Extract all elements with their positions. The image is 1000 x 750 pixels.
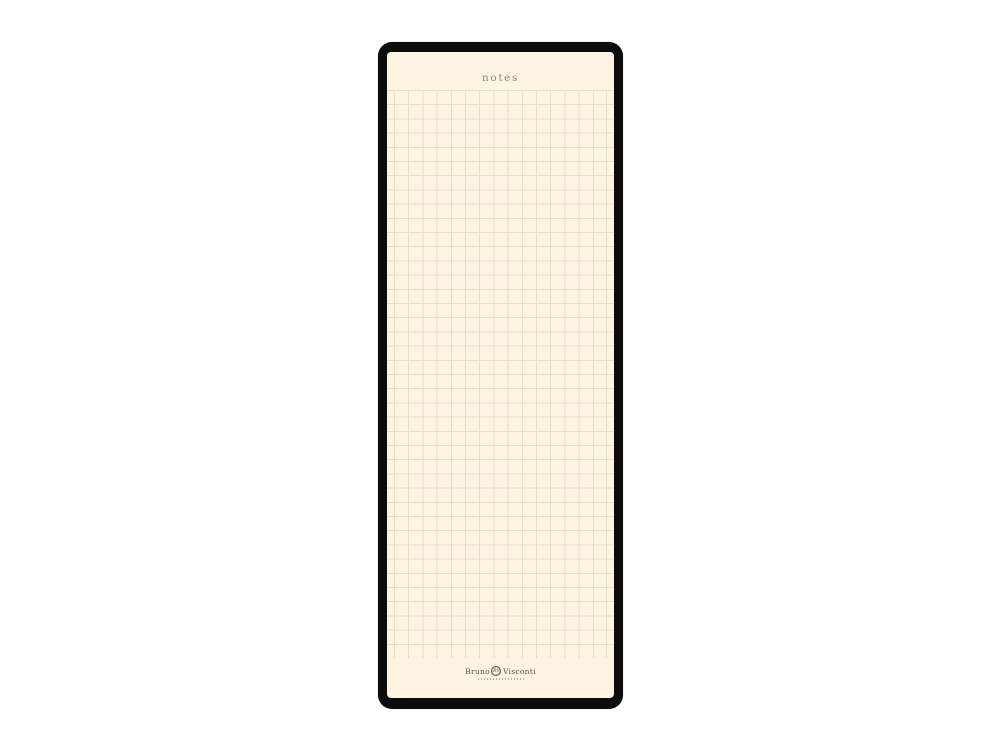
notepad-page: notes Bruno BV Visconti	[387, 52, 614, 698]
notepad-frame: notes Bruno BV Visconti	[378, 42, 623, 709]
grid-paper-area	[387, 90, 614, 658]
page-footer: Bruno BV Visconti	[387, 658, 614, 698]
brand-logo: Bruno BV Visconti	[465, 666, 536, 676]
grid-vertical-lines	[394, 90, 607, 658]
brand-tagline	[478, 678, 524, 680]
page-header: notes	[387, 52, 614, 90]
brand-monogram-icon: BV	[491, 666, 501, 676]
brand-word-first: Bruno	[465, 667, 490, 676]
canvas: notes Bruno BV Visconti	[0, 0, 1000, 750]
page-title: notes	[482, 73, 519, 84]
brand-monogram-letters: BV	[493, 669, 500, 674]
brand-word-second: Visconti	[503, 667, 536, 676]
